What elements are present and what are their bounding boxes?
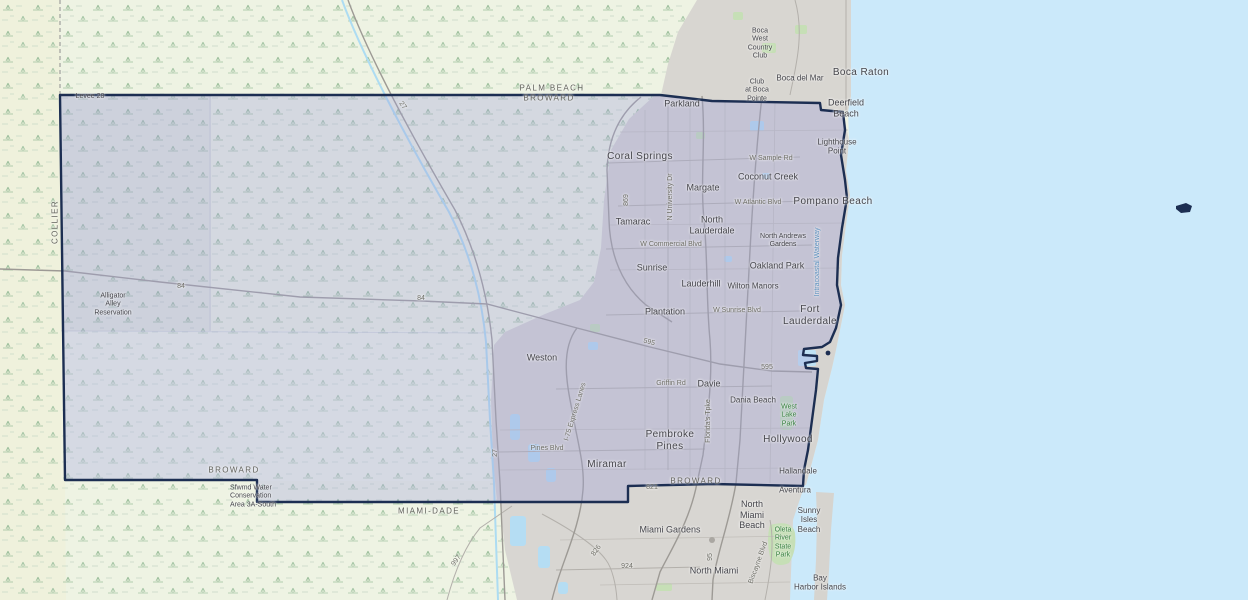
county-label-palm-beach: PALM BEACH [520, 83, 585, 92]
road-label-84-west: 84 [177, 283, 185, 291]
place-label-fort-lauderdale: Fort Lauderdale [783, 304, 837, 328]
county-label-broward-southwest: BROWARD [208, 465, 259, 474]
place-label-boca-del-mar: Boca del Mar [776, 73, 823, 82]
road-label-university-dr: N University Dr [667, 173, 675, 220]
road-label-i75-express: I-75 Express Lanes [563, 382, 589, 442]
place-label-wilton-manors: Wilton Manors [727, 281, 778, 290]
county-label-collier: COLLIER [50, 200, 59, 244]
road-label-sample-rd: W Sample Rd [749, 155, 792, 163]
road-label-595-west: 595 [642, 338, 655, 349]
place-label-coconut-creek: Coconut Creek [738, 172, 798, 183]
place-label-sunrise: Sunrise [637, 263, 668, 274]
place-label-plantation: Plantation [645, 307, 685, 318]
park-label-west-lake-park: West Lake Park [781, 404, 797, 429]
place-label-miami-gardens: Miami Gardens [639, 525, 700, 536]
road-label-826: 826 [590, 544, 603, 558]
place-label-hollywood: Hollywood [763, 434, 813, 446]
place-label-coral-springs: Coral Springs [607, 151, 673, 163]
road-label-27-south: 27 [492, 449, 500, 457]
place-label-pompano-beach: Pompano Beach [793, 196, 872, 208]
road-label-pines-blvd: Pines Blvd [530, 445, 563, 453]
place-label-sfwmd-wca: Sfwmd Water Conservation Area 3A-South [230, 485, 276, 510]
place-label-boca-west-country-club: Boca West Country Club [748, 28, 773, 61]
map-canvas[interactable]: Boca Raton Boca del Mar Boca West Countr… [0, 0, 1248, 600]
place-label-miramar: Miramar [587, 459, 626, 471]
place-label-levee-28: Levee 28 [76, 93, 105, 101]
place-label-deerfield-beach: Deerfield Beach [828, 97, 864, 118]
road-label-commercial-blvd: W Commercial Blvd [640, 241, 701, 249]
county-label-broward-north: BROWARD [523, 93, 574, 102]
place-label-aventura: Aventura [779, 485, 811, 494]
place-label-parkland: Parkland [664, 99, 700, 110]
place-label-davie: Davie [697, 379, 720, 390]
label-layer: Boca Raton Boca del Mar Boca West Countr… [0, 0, 1248, 600]
road-label-biscayne-blvd: Biscayne Blvd [748, 541, 771, 585]
place-label-north-miami-beach: North Miami Beach [739, 499, 765, 531]
water-label-intracoastal-waterway: Intracoastal Waterway [814, 228, 822, 297]
road-label-821: 821 [646, 484, 658, 492]
road-label-27-north: 27 [396, 100, 407, 111]
road-label-869: 869 [623, 194, 631, 206]
road-label-griffin-rd: Griffin Rd [656, 380, 685, 388]
road-label-sunrise-blvd: W Sunrise Blvd [713, 307, 761, 315]
place-label-lighthouse-point: Lighthouse Point [817, 138, 856, 157]
road-label-atlantic-blvd: W Atlantic Blvd [735, 199, 782, 207]
road-label-floridas-tpke: Florida's Tpke [705, 399, 713, 443]
road-label-595-east: 595 [761, 364, 773, 372]
place-label-north-lauderdale: North Lauderdale [689, 214, 734, 235]
place-label-weston: Weston [527, 353, 557, 364]
place-label-boca-raton: Boca Raton [833, 67, 889, 79]
place-label-tamarac: Tamarac [616, 217, 651, 228]
place-label-hallandale: Hallandale [779, 466, 817, 475]
road-label-997: 997 [450, 554, 463, 568]
place-label-north-andrews-gardens: North Andrews Gardens [760, 233, 806, 250]
place-label-north-miami: North Miami [690, 566, 739, 577]
place-label-pembroke-pines: Pembroke Pines [646, 429, 695, 453]
place-label-sunny-isles-beach: Sunny Isles Beach [798, 506, 821, 534]
place-label-dania-beach: Dania Beach [730, 395, 776, 404]
place-label-bay-harbor-islands: Bay Harbor Islands [794, 574, 846, 593]
road-label-84-east: 84 [417, 295, 425, 303]
road-label-95: 95 [707, 553, 715, 561]
place-label-alligator-alley-reservation: Alligator Alley Reservation [94, 293, 131, 318]
park-label-oleta-river-state-park: Oleta River State Park [775, 527, 792, 560]
county-label-miami-dade: MIAMI-DADE [398, 506, 460, 515]
place-label-oakland-park: Oakland Park [750, 261, 805, 272]
county-label-broward-southeast: BROWARD [670, 476, 721, 485]
place-label-margate: Margate [686, 183, 719, 194]
road-label-924: 924 [621, 563, 633, 571]
place-label-club-at-boca-pointe: Club at Boca Pointe [745, 79, 769, 104]
place-label-lauderhill: Lauderhill [681, 279, 720, 290]
